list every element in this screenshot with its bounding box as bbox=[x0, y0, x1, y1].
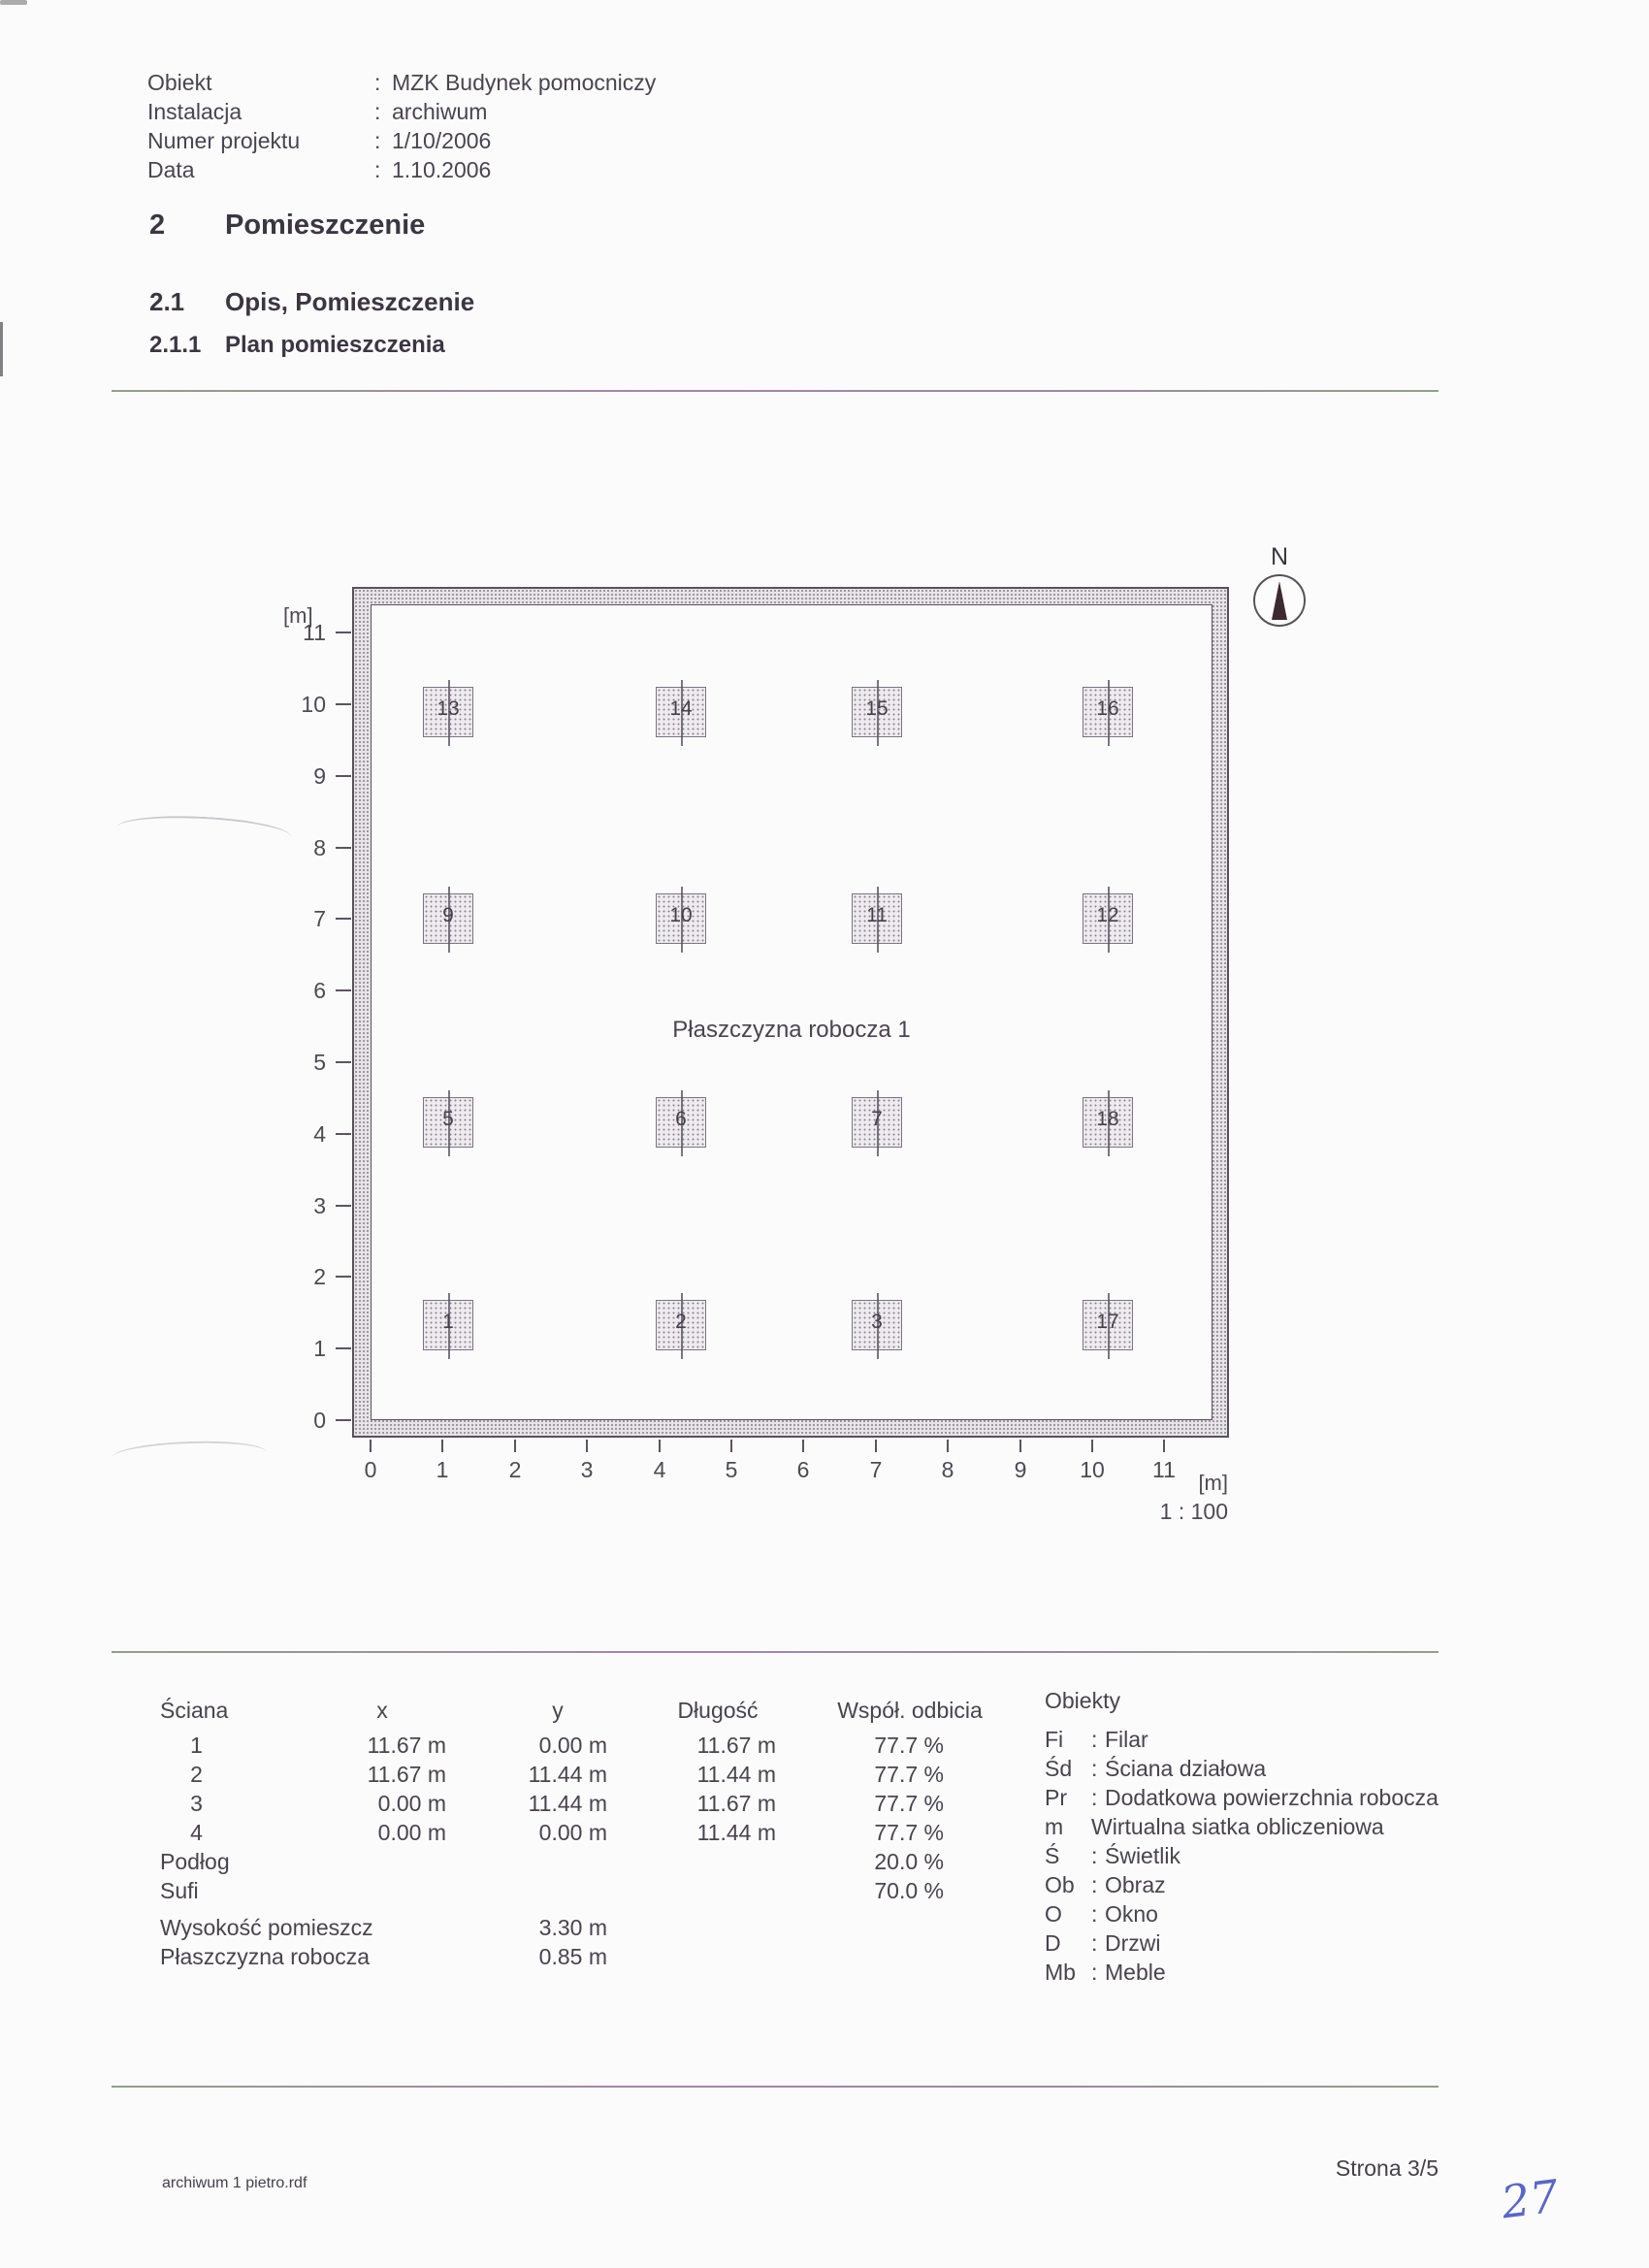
x-axis-tick bbox=[441, 1440, 443, 1452]
y-axis-tick-label: 9 bbox=[268, 763, 326, 790]
luminaire-symbol: 17 bbox=[1083, 1300, 1133, 1350]
y-axis-tick bbox=[336, 1061, 351, 1063]
legend-description: Wirtualna siatka obliczeniowa bbox=[1091, 1814, 1518, 1840]
x-axis-tick bbox=[514, 1440, 516, 1452]
room-height-label: Wysokość pomieszcz bbox=[160, 1915, 373, 1941]
legend-description: Meble bbox=[1105, 1960, 1532, 1986]
x-axis-tick-label: 3 bbox=[563, 1457, 611, 1483]
floor-reflectance: 20.0 % bbox=[827, 1849, 944, 1875]
legend-abbr: Ob bbox=[1045, 1872, 1087, 1898]
wall-number: 2 bbox=[170, 1762, 223, 1788]
legend-separator: : bbox=[1091, 1727, 1097, 1753]
legend-separator: : bbox=[1091, 1756, 1097, 1782]
y-axis-tick-label: 4 bbox=[268, 1121, 326, 1148]
col-header-y: y bbox=[500, 1698, 616, 1724]
x-axis-tick-label: 8 bbox=[923, 1457, 972, 1483]
x-axis-tick bbox=[802, 1440, 804, 1452]
subsubsection-title: Plan pomieszczenia bbox=[225, 332, 445, 359]
floor-label: Podłog bbox=[160, 1849, 230, 1875]
luminaire-number: 12 bbox=[1083, 904, 1132, 927]
scanned-report-page: Obiekt : MZK Budynek pomocniczy Instalac… bbox=[0, 0, 1649, 2268]
y-axis-tick bbox=[336, 847, 351, 849]
luminaire-symbol: 7 bbox=[852, 1097, 902, 1148]
luminaire-symbol: 1 bbox=[423, 1300, 473, 1350]
wall-length: 11.67 m bbox=[660, 1791, 776, 1817]
luminaire-number: 14 bbox=[657, 697, 705, 721]
luminaire-symbol: 3 bbox=[852, 1300, 902, 1350]
work-plane-label: Płaszczyzna robocza 1 bbox=[549, 1017, 1034, 1044]
y-axis-tick bbox=[336, 703, 351, 705]
luminaire-symbol: 10 bbox=[656, 893, 706, 944]
wall-reflectance: 77.7 % bbox=[827, 1791, 944, 1817]
y-axis-tick-label: 7 bbox=[268, 906, 326, 932]
y-axis-tick bbox=[336, 1419, 351, 1421]
horizontal-rule-top bbox=[112, 390, 1439, 392]
header-separator: : bbox=[374, 70, 380, 96]
luminaire-symbol: 15 bbox=[852, 687, 902, 737]
y-axis-tick-label: 2 bbox=[268, 1264, 326, 1290]
legend-abbr: Śd bbox=[1045, 1756, 1087, 1782]
luminaire-number: 18 bbox=[1083, 1108, 1132, 1131]
x-axis-tick bbox=[1091, 1440, 1093, 1452]
header-value: 1.10.2006 bbox=[392, 157, 491, 183]
subsection-number: 2.1 bbox=[149, 287, 184, 317]
luminaire-number: 6 bbox=[657, 1108, 705, 1131]
luminaire-symbol: 13 bbox=[423, 687, 473, 737]
wall-number: 1 bbox=[170, 1733, 223, 1759]
x-axis-tick-label: 1 bbox=[418, 1457, 467, 1483]
y-axis-tick bbox=[336, 1205, 351, 1207]
x-axis-tick-label: 7 bbox=[852, 1457, 900, 1483]
luminaire-number: 2 bbox=[657, 1311, 705, 1334]
header-value: archiwum bbox=[392, 99, 487, 125]
y-axis-tick bbox=[336, 1347, 351, 1349]
header-value: MZK Budynek pomocniczy bbox=[392, 70, 656, 96]
legend-description: Dodatkowa powierzchnia robocza bbox=[1105, 1785, 1532, 1811]
wall-x: 11.67 m bbox=[330, 1733, 446, 1759]
legend-separator: : bbox=[1091, 1960, 1097, 1986]
wall-length: 11.67 m bbox=[660, 1733, 776, 1759]
legend-abbr: Mb bbox=[1045, 1960, 1087, 1986]
legend-description: Obraz bbox=[1105, 1872, 1532, 1898]
x-axis-tick-label: 6 bbox=[779, 1457, 827, 1483]
y-axis-tick-label: 5 bbox=[268, 1050, 326, 1076]
legend-separator: : bbox=[1091, 1872, 1097, 1898]
horizontal-rule-footer bbox=[112, 2086, 1439, 2088]
x-axis-tick-label: 5 bbox=[707, 1457, 756, 1483]
y-axis-tick-label: 11 bbox=[268, 620, 326, 646]
x-axis-tick-label: 9 bbox=[996, 1457, 1045, 1483]
luminaire-number: 11 bbox=[853, 904, 901, 927]
header-separator: : bbox=[374, 128, 380, 154]
y-axis-tick-label: 1 bbox=[268, 1336, 326, 1362]
y-axis-tick-label: 10 bbox=[268, 692, 326, 718]
x-axis-tick bbox=[370, 1440, 372, 1452]
wall-x: 0.00 m bbox=[330, 1791, 446, 1817]
luminaire-symbol: 2 bbox=[656, 1300, 706, 1350]
x-axis-tick-label: 11 bbox=[1140, 1457, 1188, 1483]
luminaire-symbol: 18 bbox=[1083, 1097, 1133, 1148]
x-axis-tick-label: 2 bbox=[491, 1457, 539, 1483]
luminaire-symbol: 6 bbox=[656, 1097, 706, 1148]
col-header-dlugosc: Długość bbox=[660, 1698, 776, 1724]
x-axis-tick-label: 10 bbox=[1068, 1457, 1116, 1483]
legend-description: Filar bbox=[1105, 1727, 1532, 1753]
legend-abbr: Ś bbox=[1045, 1843, 1087, 1869]
luminaire-number: 16 bbox=[1083, 697, 1132, 721]
section-number: 2 bbox=[149, 210, 165, 242]
work-plane-height-label: Płaszczyzna robocza bbox=[160, 1944, 370, 1970]
surfaces-table: Ściana x y Długość Współ. odbicia 1 11.6… bbox=[112, 1698, 985, 1998]
legend-description: Okno bbox=[1105, 1901, 1532, 1928]
scan-smudge-top-left bbox=[0, 0, 27, 5]
x-axis-tick bbox=[586, 1440, 588, 1452]
luminaire-number: 15 bbox=[853, 697, 901, 721]
legend-separator: : bbox=[1091, 1785, 1097, 1811]
legend-abbr: D bbox=[1045, 1930, 1087, 1957]
wall-y: 11.44 m bbox=[491, 1791, 607, 1817]
y-axis-tick bbox=[336, 918, 351, 920]
legend-separator: : bbox=[1091, 1843, 1097, 1869]
y-axis-tick bbox=[336, 1133, 351, 1135]
y-axis-tick-label: 0 bbox=[268, 1408, 326, 1434]
luminaire-symbol: 12 bbox=[1083, 893, 1133, 944]
luminaire-symbol: 11 bbox=[852, 893, 902, 944]
y-axis-tick bbox=[336, 989, 351, 991]
plan-scale-label: 1 : 100 bbox=[1131, 1499, 1228, 1525]
header-label: Instalacja bbox=[147, 99, 242, 125]
wall-y: 0.00 m bbox=[491, 1733, 607, 1759]
section-title: Pomieszczenie bbox=[225, 210, 425, 242]
wall-reflectance: 77.7 % bbox=[827, 1762, 944, 1788]
wall-length: 11.44 m bbox=[660, 1762, 776, 1788]
legend-description: Ściana działowa bbox=[1105, 1756, 1532, 1782]
y-axis-tick bbox=[336, 1276, 351, 1278]
legend-abbr: Pr bbox=[1045, 1785, 1087, 1811]
scan-curve-mark-1 bbox=[115, 812, 291, 852]
legend-separator: : bbox=[1091, 1901, 1097, 1928]
luminaire-symbol: 14 bbox=[656, 687, 706, 737]
wall-number: 4 bbox=[170, 1820, 223, 1846]
footer-page-number: Strona 3/5 bbox=[1264, 2155, 1439, 2182]
footer-filename: archiwum 1 pietro.rdf bbox=[162, 2175, 307, 2192]
handwritten-page-number: 27 bbox=[1499, 2170, 1562, 2229]
y-axis-tick-label: 6 bbox=[268, 978, 326, 1004]
scan-curve-mark-2 bbox=[112, 1439, 268, 1472]
col-header-x: x bbox=[324, 1698, 440, 1724]
subsection-title: Opis, Pomieszczenie bbox=[225, 287, 474, 317]
wall-x: 11.67 m bbox=[330, 1762, 446, 1788]
x-axis-tick bbox=[1019, 1440, 1021, 1452]
x-axis-tick bbox=[1163, 1440, 1165, 1452]
luminaire-symbol: 5 bbox=[423, 1097, 473, 1148]
y-axis-tick bbox=[336, 775, 351, 777]
luminaire-number: 13 bbox=[424, 697, 472, 721]
x-axis-tick bbox=[730, 1440, 732, 1452]
legend-separator: : bbox=[1091, 1930, 1097, 1957]
y-axis-tick bbox=[336, 632, 351, 633]
x-axis-tick-label: 4 bbox=[635, 1457, 684, 1483]
legend-abbr: m bbox=[1045, 1814, 1087, 1840]
y-axis-tick-label: 3 bbox=[268, 1193, 326, 1219]
header-separator: : bbox=[374, 99, 380, 125]
x-axis-tick bbox=[659, 1440, 661, 1452]
ceiling-label: Sufi bbox=[160, 1878, 199, 1904]
north-label: N bbox=[1253, 543, 1306, 571]
subsubsection-number: 2.1.1 bbox=[149, 332, 201, 359]
room-height-value: 3.30 m bbox=[491, 1915, 607, 1941]
legend-description: Drzwi bbox=[1105, 1930, 1532, 1957]
header-label: Data bbox=[147, 157, 195, 183]
header-separator: : bbox=[374, 157, 380, 183]
wall-y: 11.44 m bbox=[491, 1762, 607, 1788]
luminaire-number: 9 bbox=[424, 904, 472, 927]
x-axis-tick bbox=[947, 1440, 949, 1452]
header-label: Numer projektu bbox=[147, 128, 300, 154]
header-value: 1/10/2006 bbox=[392, 128, 491, 154]
wall-number: 3 bbox=[170, 1791, 223, 1817]
north-arrow-needle-icon bbox=[1272, 581, 1287, 620]
wall-reflectance: 77.7 % bbox=[827, 1820, 944, 1846]
luminaire-number: 10 bbox=[657, 904, 705, 927]
header-label: Obiekt bbox=[147, 70, 211, 96]
luminaire-symbol: 16 bbox=[1083, 687, 1133, 737]
col-header-sciana: Ściana bbox=[160, 1698, 228, 1724]
legend-items: Fi:FilarŚd:Ściana działowaPr:Dodatkowa p… bbox=[1045, 1688, 1549, 1998]
y-axis-tick-label: 8 bbox=[268, 835, 326, 861]
work-plane-height-value: 0.85 m bbox=[491, 1944, 607, 1970]
luminaire-number: 7 bbox=[853, 1108, 901, 1131]
wall-x: 0.00 m bbox=[330, 1820, 446, 1846]
col-header-wspol: Współ. odbicia bbox=[827, 1698, 992, 1724]
luminaire-symbol: 9 bbox=[423, 893, 473, 944]
wall-y: 0.00 m bbox=[491, 1820, 607, 1846]
luminaire-number: 5 bbox=[424, 1108, 472, 1131]
legend-abbr: O bbox=[1045, 1901, 1087, 1928]
x-axis-tick-label: 0 bbox=[346, 1457, 395, 1483]
x-axis-tick bbox=[875, 1440, 877, 1452]
wall-reflectance: 77.7 % bbox=[827, 1733, 944, 1759]
horizontal-rule-middle bbox=[112, 1651, 1439, 1653]
wall-length: 11.44 m bbox=[660, 1820, 776, 1846]
luminaire-number: 1 bbox=[424, 1311, 472, 1334]
luminaire-number: 3 bbox=[853, 1311, 901, 1334]
legend-description: Świetlik bbox=[1105, 1843, 1532, 1869]
objects-legend: Obiekty Fi:FilarŚd:Ściana działowaPr:Dod… bbox=[1045, 1688, 1549, 1998]
legend-abbr: Fi bbox=[1045, 1727, 1087, 1753]
luminaire-number: 17 bbox=[1083, 1311, 1132, 1334]
scan-edge-mark bbox=[0, 322, 3, 376]
ceiling-reflectance: 70.0 % bbox=[827, 1878, 944, 1904]
